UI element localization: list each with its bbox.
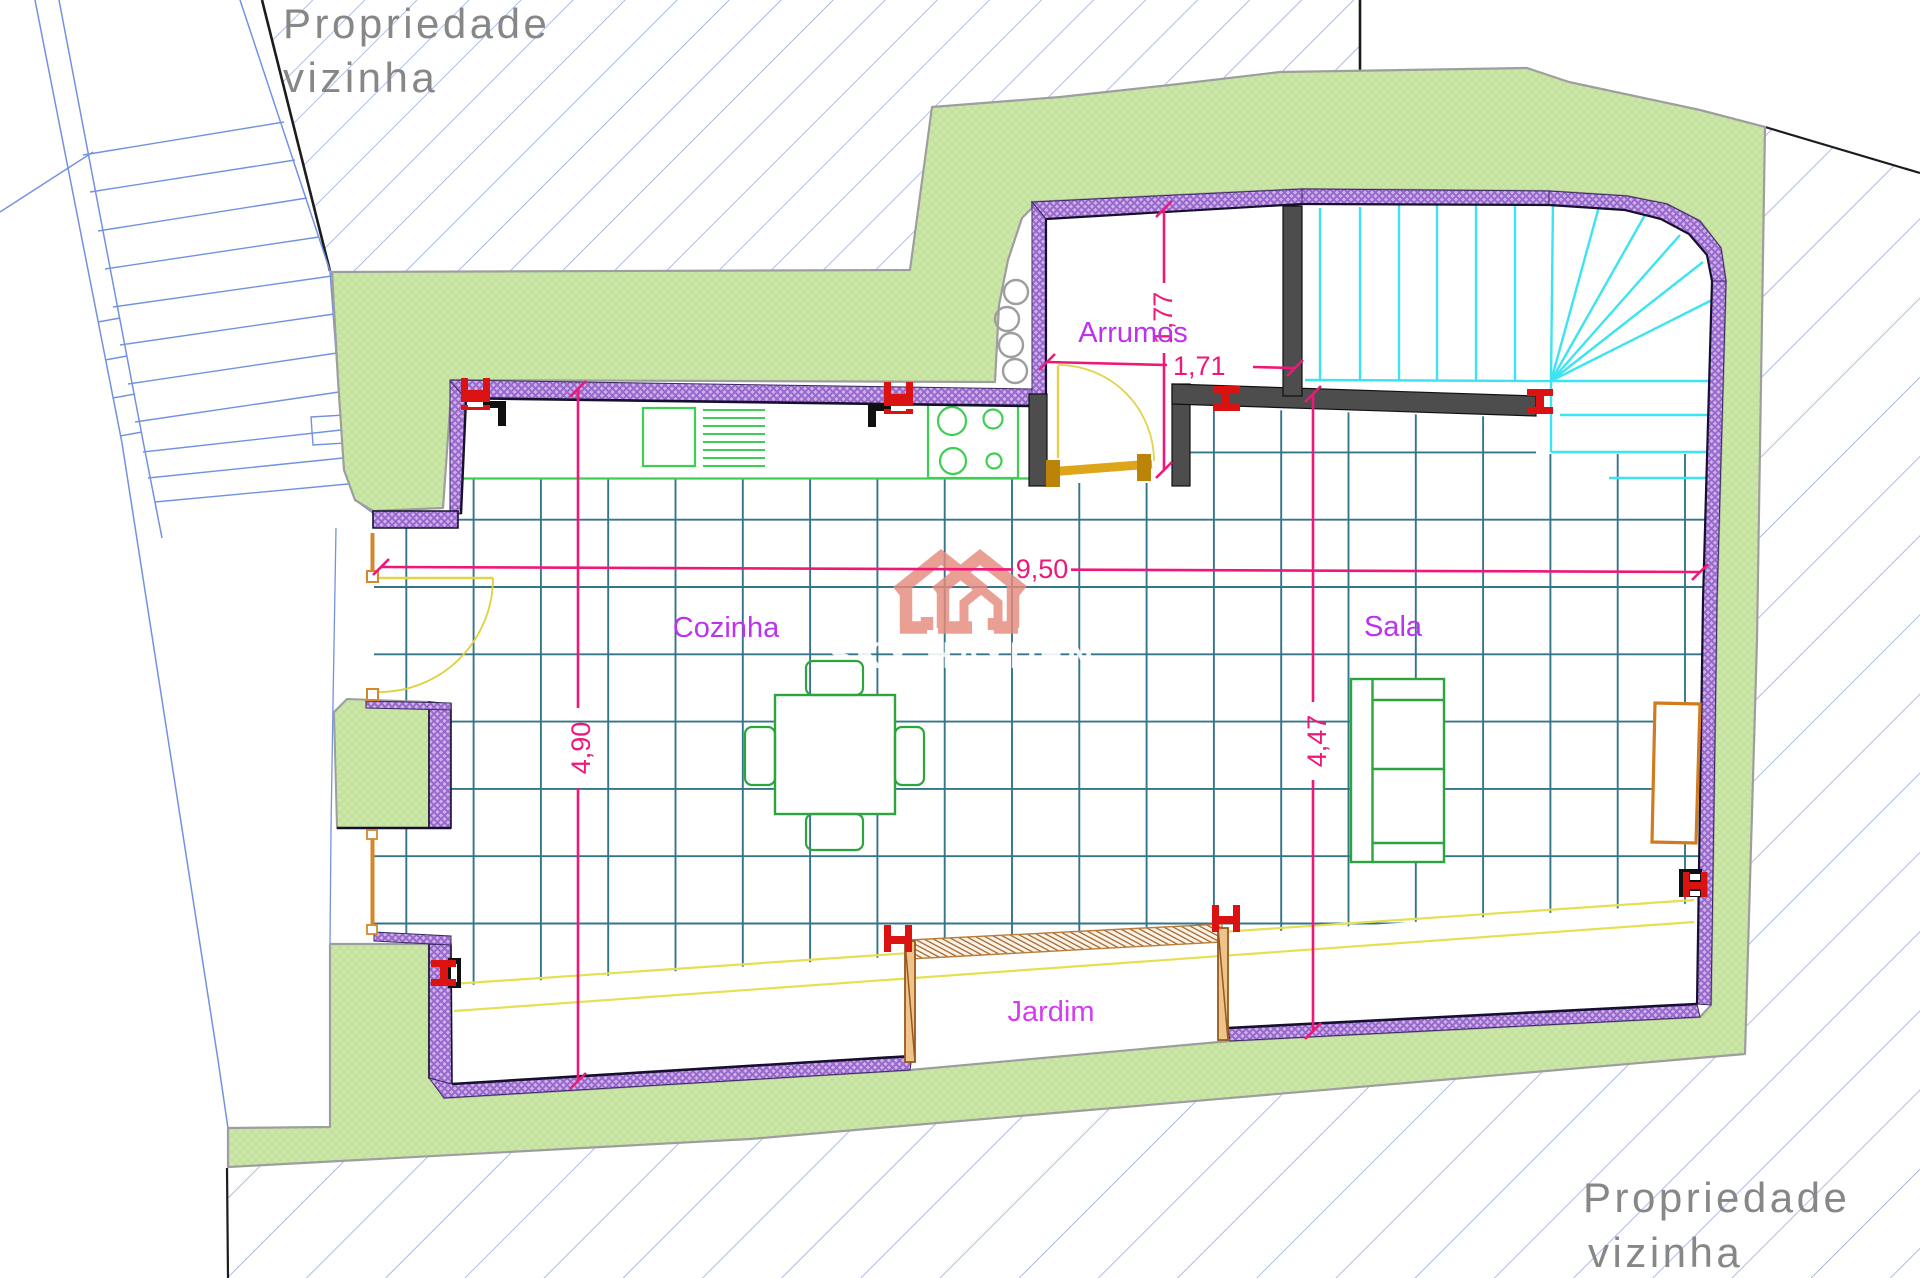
svg-text:Arrumos: Arrumos: [1078, 317, 1188, 349]
svg-text:Propriedade: Propriedade: [1583, 1174, 1850, 1221]
svg-text:SKY HAYDEN: SKY HAYDEN: [828, 635, 1097, 676]
svg-text:4,90: 4,90: [566, 722, 596, 775]
svg-text:Cozinha: Cozinha: [673, 612, 780, 644]
svg-text:1,71: 1,71: [1173, 351, 1226, 381]
svg-text:9,50: 9,50: [1016, 554, 1069, 584]
svg-text:vizinha: vizinha: [1588, 1229, 1743, 1276]
svg-text:Sala: Sala: [1364, 611, 1423, 643]
svg-text:Jardim: Jardim: [1007, 996, 1094, 1028]
svg-text:vizinha: vizinha: [283, 54, 438, 101]
svg-text:Propriedade: Propriedade: [283, 0, 550, 47]
svg-text:4,47: 4,47: [1302, 715, 1332, 768]
